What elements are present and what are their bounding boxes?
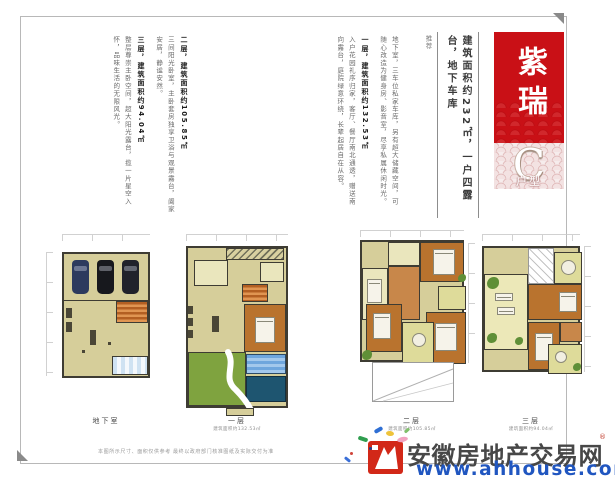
plant-icon [573,363,581,371]
unit-label: 户型 [516,173,542,189]
paragraph-floor3: 三层，建筑面积约94.04㎡ 整层尊崇主卧空间，超大阳光露台，揽一片星空入怀，品… [109,36,147,216]
plant-icon [487,333,497,343]
column-mark [108,342,111,345]
intro-text-right-group: 地下室，三车位私家车库，另有超大储藏空间，可随心改造为健身房、影音室，尽享私属休… [328,36,399,212]
leisure-room [554,252,582,284]
plan-label-floor3: 三层 [482,416,580,426]
plant-icon [362,350,372,360]
dimension-line [360,230,464,237]
car-icon [97,260,114,294]
dimension-line [584,246,591,372]
bed-icon [433,249,455,275]
plan-area-floor1: 建筑面积约132.53㎡ [186,426,288,432]
page-curl-top-right [553,13,564,24]
bed-icon [435,323,457,351]
car-windshield [74,266,87,271]
unit-card-scale-panel: C 户型 [494,143,564,189]
bath-room [438,286,466,310]
paragraph-floor1-heading: 一层，建筑面积约132.53㎡ [358,36,371,212]
paragraph-floor3-heading: 三层，建筑面积约94.04㎡ [134,36,147,216]
car-icon [122,260,139,294]
plant-icon [487,277,499,289]
paragraph-floor1-body: 入户花园礼序归家，客厅、餐厅南北通透，赠送南向露台，庭院绿意环绕，长辈起居自在从… [336,36,356,205]
dimension-line [468,243,475,363]
paragraph-floor2-body: 三间阳光卧室，主卧套房独享卫浴与观景露台，阖家安居，静谧安然。 [155,36,175,213]
car-windshield [124,266,137,271]
paragraph-floor2: 二层，建筑面积约105.85㎡ 三间阳光卧室，主卧套房独享卫浴与观景露台，阖家安… [152,36,190,216]
family-room [402,322,434,364]
bed-icon [367,279,382,303]
roof-terrace [484,274,528,350]
plan-area-floor3: 建筑面积约94.04㎡ [482,426,580,432]
tagline-side-note: 推荐 [423,35,433,50]
dimension-line [46,252,53,376]
plant-icon [515,337,523,345]
storage-room [112,356,148,375]
stairs-icon [116,301,148,323]
floorplan-floor2 [360,240,464,362]
intro-text-left-group: 二层，建筑面积约105.85㎡ 三间阳光卧室，主卧套房独享卫浴与观景露台，阖家安… [104,36,190,216]
unit-card-red-panel: 紫瑞 [494,32,564,143]
confetti-icon [369,447,372,450]
registered-mark: ® [599,433,606,441]
table-icon [412,333,426,347]
paragraph-basement: 地下室，三车位私家车库，另有超大储藏空间，可随心改造为健身房、影音室，尽享私属休… [376,36,399,212]
closet-icon [66,308,72,318]
stairwell [528,248,554,284]
closet-room [560,322,582,342]
closet-icon [66,322,72,332]
entry-step [226,408,254,416]
column-mark [82,350,85,353]
terrace-lines [373,363,455,403]
floorplan-floor1 [186,246,288,408]
terrace [372,362,454,402]
paragraph-floor2-heading: 二层，建筑面积约105.85㎡ [177,36,190,216]
dimension-line [482,234,580,241]
car-icon [72,260,89,294]
car-windshield [99,266,112,271]
paragraph-floor3-body: 整层尊崇主卧空间，超大阳光露台，揽一片星空入怀，品味生活的无限风光。 [112,36,132,205]
bed-icon [559,292,577,312]
bedroom [366,304,402,352]
brochure-page: 二层，建筑面积约105.85㎡ 三间阳光卧室，主卧套房独享卫浴与观景露台，阖家安… [0,0,615,480]
study-room [388,242,420,266]
confetti-icon [350,452,353,455]
tagline: 建筑面积约232㎡，一户四露台，地下车库 [437,32,479,218]
unit-card: 紫瑞 C 户型 [494,32,564,189]
dimension-line [186,234,288,241]
project-name: 紫瑞 [507,46,551,124]
plan-label-floor1: 一层 [186,416,288,426]
disclaimer-text: 本图所示尺寸、面积仅供参考 最终以政府部门核准图纸及实际交付为准 [98,448,274,455]
lounge-chair-icon [497,307,515,315]
page-curl-bottom-left [17,450,28,461]
watermark-logo [368,441,403,474]
master-suite [528,284,582,320]
garden-path [188,248,290,410]
watermark-logo-glyph [368,441,403,474]
table-icon [561,260,576,275]
floorplan-basement [62,252,150,378]
table-icon [555,351,567,363]
balcony-room [548,344,582,374]
paragraph-floor1: 一层，建筑面积约132.53㎡ 入户花园礼序归家，客厅、餐厅南北通透，赠送南向露… [333,36,371,212]
dimension-line [62,234,150,241]
watermark-url: www.ahhouse.com [416,459,615,480]
bed-icon [373,313,391,339]
lounge-chair-icon [495,293,513,301]
table-icon [90,330,96,345]
floorplan-floor3 [482,246,580,372]
plan-label-floor2: 二层 [360,416,464,426]
plan-label-basement: 地下室 [62,416,150,426]
paragraph-basement-body: 地下室，三车位私家车库，另有超大储藏空间，可随心改造为健身房、影音室，尽享私属休… [379,36,399,205]
